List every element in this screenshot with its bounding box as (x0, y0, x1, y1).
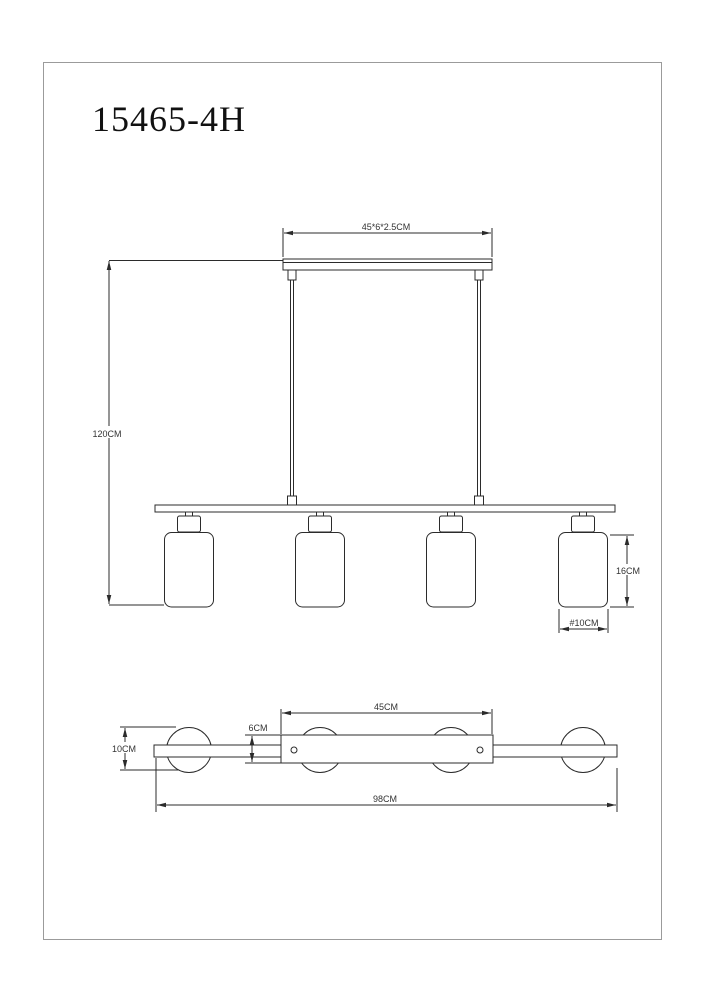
dim-label-shade-diameter-plan: 10CM (112, 744, 136, 754)
dim-shade-height: 16CM (610, 535, 642, 607)
lamp-4 (559, 512, 608, 607)
suspension-left (288, 270, 297, 505)
ceiling-canopy (283, 259, 492, 270)
lamp-socket (178, 516, 201, 532)
dim-label-shade-height: 16CM (616, 566, 640, 576)
dim-label-canopy-length: 45CM (374, 702, 398, 712)
lamp-shade (559, 533, 608, 608)
dim-canopy-size: 45*6*2.5CM (283, 222, 492, 257)
dim-label-drop-height: 120CM (92, 429, 121, 439)
lamp-shade (427, 533, 476, 608)
technical-drawing: 45*6*2.5CM (0, 0, 707, 1000)
dim-label-overall-length: 98CM (373, 794, 397, 804)
lamp-3 (427, 512, 476, 607)
lamp-1 (165, 512, 214, 607)
dim-label-shade-diameter: #10CM (569, 618, 598, 628)
cord-connector-bottom (288, 496, 297, 505)
suspension-right (475, 270, 484, 505)
dim-overall-length: 98CM (156, 758, 617, 812)
cord-connector-top (475, 270, 483, 280)
lamp-socket (440, 516, 463, 532)
cord-connector-top (288, 270, 296, 280)
lamp-socket (572, 516, 595, 532)
cord-connector-bottom (475, 496, 484, 505)
dim-label-canopy-size: 45*6*2.5CM (362, 222, 411, 232)
lamp-2 (296, 512, 345, 607)
fixture-bar (155, 505, 615, 512)
top-view: 45CM 6CM 10CM 98CM (109, 702, 617, 812)
dim-label-canopy-width: 6CM (248, 723, 267, 733)
dim-shade-diameter-front: #10CM (559, 609, 608, 633)
lamp-socket (309, 516, 332, 532)
lamp-shade (165, 533, 214, 608)
front-view: 45*6*2.5CM (90, 222, 642, 633)
lamp-shade (296, 533, 345, 608)
canopy-plate-plan (281, 735, 493, 763)
drawing-sheet: 15465-4H 45*6*2.5CM (0, 0, 707, 1000)
